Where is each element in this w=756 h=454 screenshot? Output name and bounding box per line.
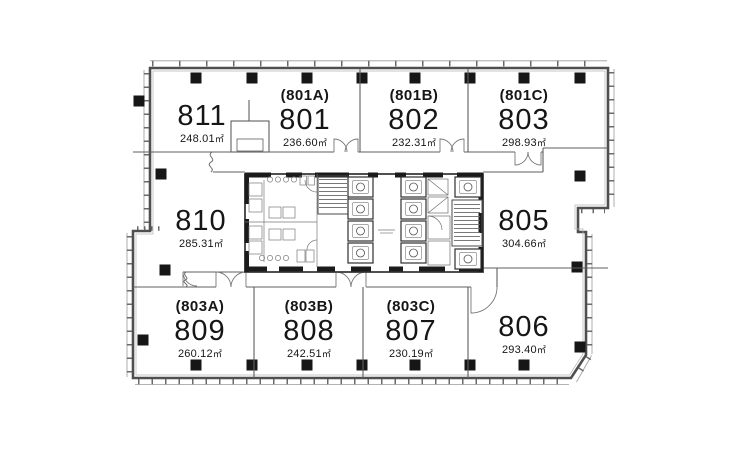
room-area: 232.31㎡: [388, 138, 439, 151]
elevator-icon: [455, 177, 481, 197]
room-unit-802[interactable]: (801B) 802 232.31㎡: [388, 88, 439, 151]
room-unit-810[interactable]: 810 285.31㎡: [175, 206, 226, 252]
room-area: 304.66㎡: [498, 239, 549, 252]
elevator-icon: [348, 177, 373, 197]
lobby-micro-text: [378, 230, 395, 233]
service-core: [245, 173, 484, 273]
room-area: 293.40㎡: [498, 345, 549, 358]
room-unit-805[interactable]: 805 304.66㎡: [498, 206, 549, 252]
room-code: (801C): [498, 88, 549, 105]
elevator-icon: [401, 243, 426, 263]
room-number: 811: [177, 102, 226, 131]
elevator-icon: [401, 221, 426, 241]
room-number: 809: [174, 317, 225, 346]
elevator-icon: [401, 199, 426, 219]
elevator-icon: [348, 221, 373, 241]
room-unit-807[interactable]: (803C) 807 230.19㎡: [385, 299, 436, 362]
toilet-block: [245, 174, 317, 267]
room-number: 805: [498, 207, 549, 236]
room-area: 230.19㎡: [385, 349, 436, 362]
service-shafts: [428, 179, 450, 265]
room-unit-806[interactable]: 806 293.40㎡: [498, 312, 549, 358]
floor-plan-drawing: [0, 0, 756, 454]
room-area: 285.31㎡: [175, 239, 226, 252]
room-unit-811[interactable]: 811 248.01㎡: [177, 101, 226, 147]
room-number: 803: [498, 106, 549, 135]
room-number: 807: [385, 317, 436, 346]
room-area: 248.01㎡: [177, 134, 226, 147]
elevator-icon: [455, 249, 481, 269]
elevator-icon: [401, 177, 426, 197]
room-area: 236.60㎡: [279, 138, 330, 151]
room-number: 808: [283, 317, 334, 346]
room-number: 806: [498, 313, 549, 342]
room-code: (803C): [385, 299, 436, 316]
room-code: (801A): [279, 88, 330, 105]
room-unit-808[interactable]: (803B) 808 242.51㎡: [283, 299, 334, 362]
elevator-icon: [348, 243, 373, 263]
elevator-bank: [348, 177, 481, 269]
stair-icon: [452, 200, 482, 246]
room-area: 298.93㎡: [498, 138, 549, 151]
room-number: 801: [279, 106, 330, 135]
room-area: 260.12㎡: [174, 349, 225, 362]
room-unit-801[interactable]: (801A) 801 236.60㎡: [279, 88, 330, 151]
room-number: 810: [175, 207, 226, 236]
room-code: (803A): [174, 299, 225, 316]
room-area: 242.51㎡: [283, 349, 334, 362]
stair-icon: [318, 176, 348, 214]
room-unit-803[interactable]: (801C) 803 298.93㎡: [498, 88, 549, 151]
room-number: 802: [388, 106, 439, 135]
room-unit-809[interactable]: (803A) 809 260.12㎡: [174, 299, 225, 362]
floor-plan-screenshot: 811 248.01㎡ (801A) 801 236.60㎡ (801B) 80…: [0, 0, 756, 454]
elevator-icon: [348, 199, 373, 219]
room-code: (803B): [283, 299, 334, 316]
room-code: (801B): [388, 88, 439, 105]
